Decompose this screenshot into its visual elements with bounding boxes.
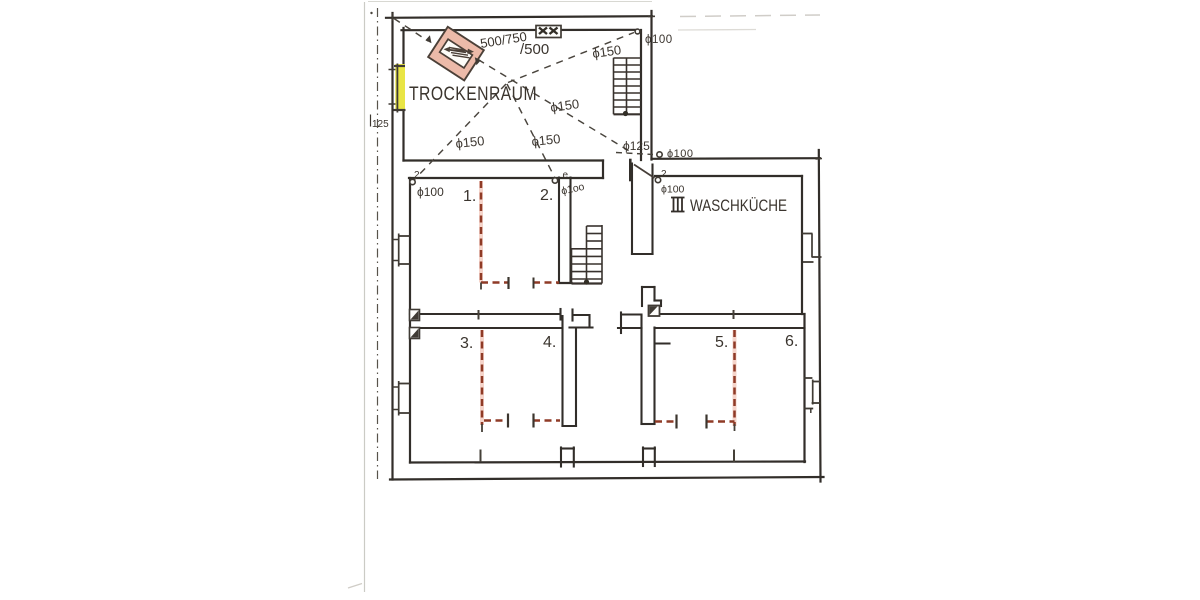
svg-text:e: e xyxy=(563,170,569,181)
svg-text:TROCKENRAUM: TROCKENRAUM xyxy=(409,84,537,105)
svg-text:6.: 6. xyxy=(785,333,798,350)
svg-text:1.: 1. xyxy=(463,188,476,205)
svg-text:4.: 4. xyxy=(543,334,556,351)
svg-text:2: 2 xyxy=(661,169,667,180)
svg-text:ϕ100: ϕ100 xyxy=(417,185,444,199)
svg-text:ϕ100: ϕ100 xyxy=(645,34,673,46)
svg-text:125: 125 xyxy=(372,119,389,130)
svg-text:ϕ100: ϕ100 xyxy=(661,184,685,196)
svg-text:ϕ150: ϕ150 xyxy=(531,131,561,149)
svg-text:5.: 5. xyxy=(715,334,728,351)
svg-text:ϕ125: ϕ125 xyxy=(623,139,650,153)
svg-text:WASCHKÜCHE: WASCHKÜCHE xyxy=(690,196,787,215)
svg-text:ϕ150: ϕ150 xyxy=(455,133,485,151)
svg-text:/500: /500 xyxy=(520,41,549,58)
svg-text:ϕ100: ϕ100 xyxy=(667,148,694,160)
svg-text:2: 2 xyxy=(414,170,420,181)
svg-text:3.: 3. xyxy=(460,335,473,352)
svg-text:2.: 2. xyxy=(540,187,553,204)
